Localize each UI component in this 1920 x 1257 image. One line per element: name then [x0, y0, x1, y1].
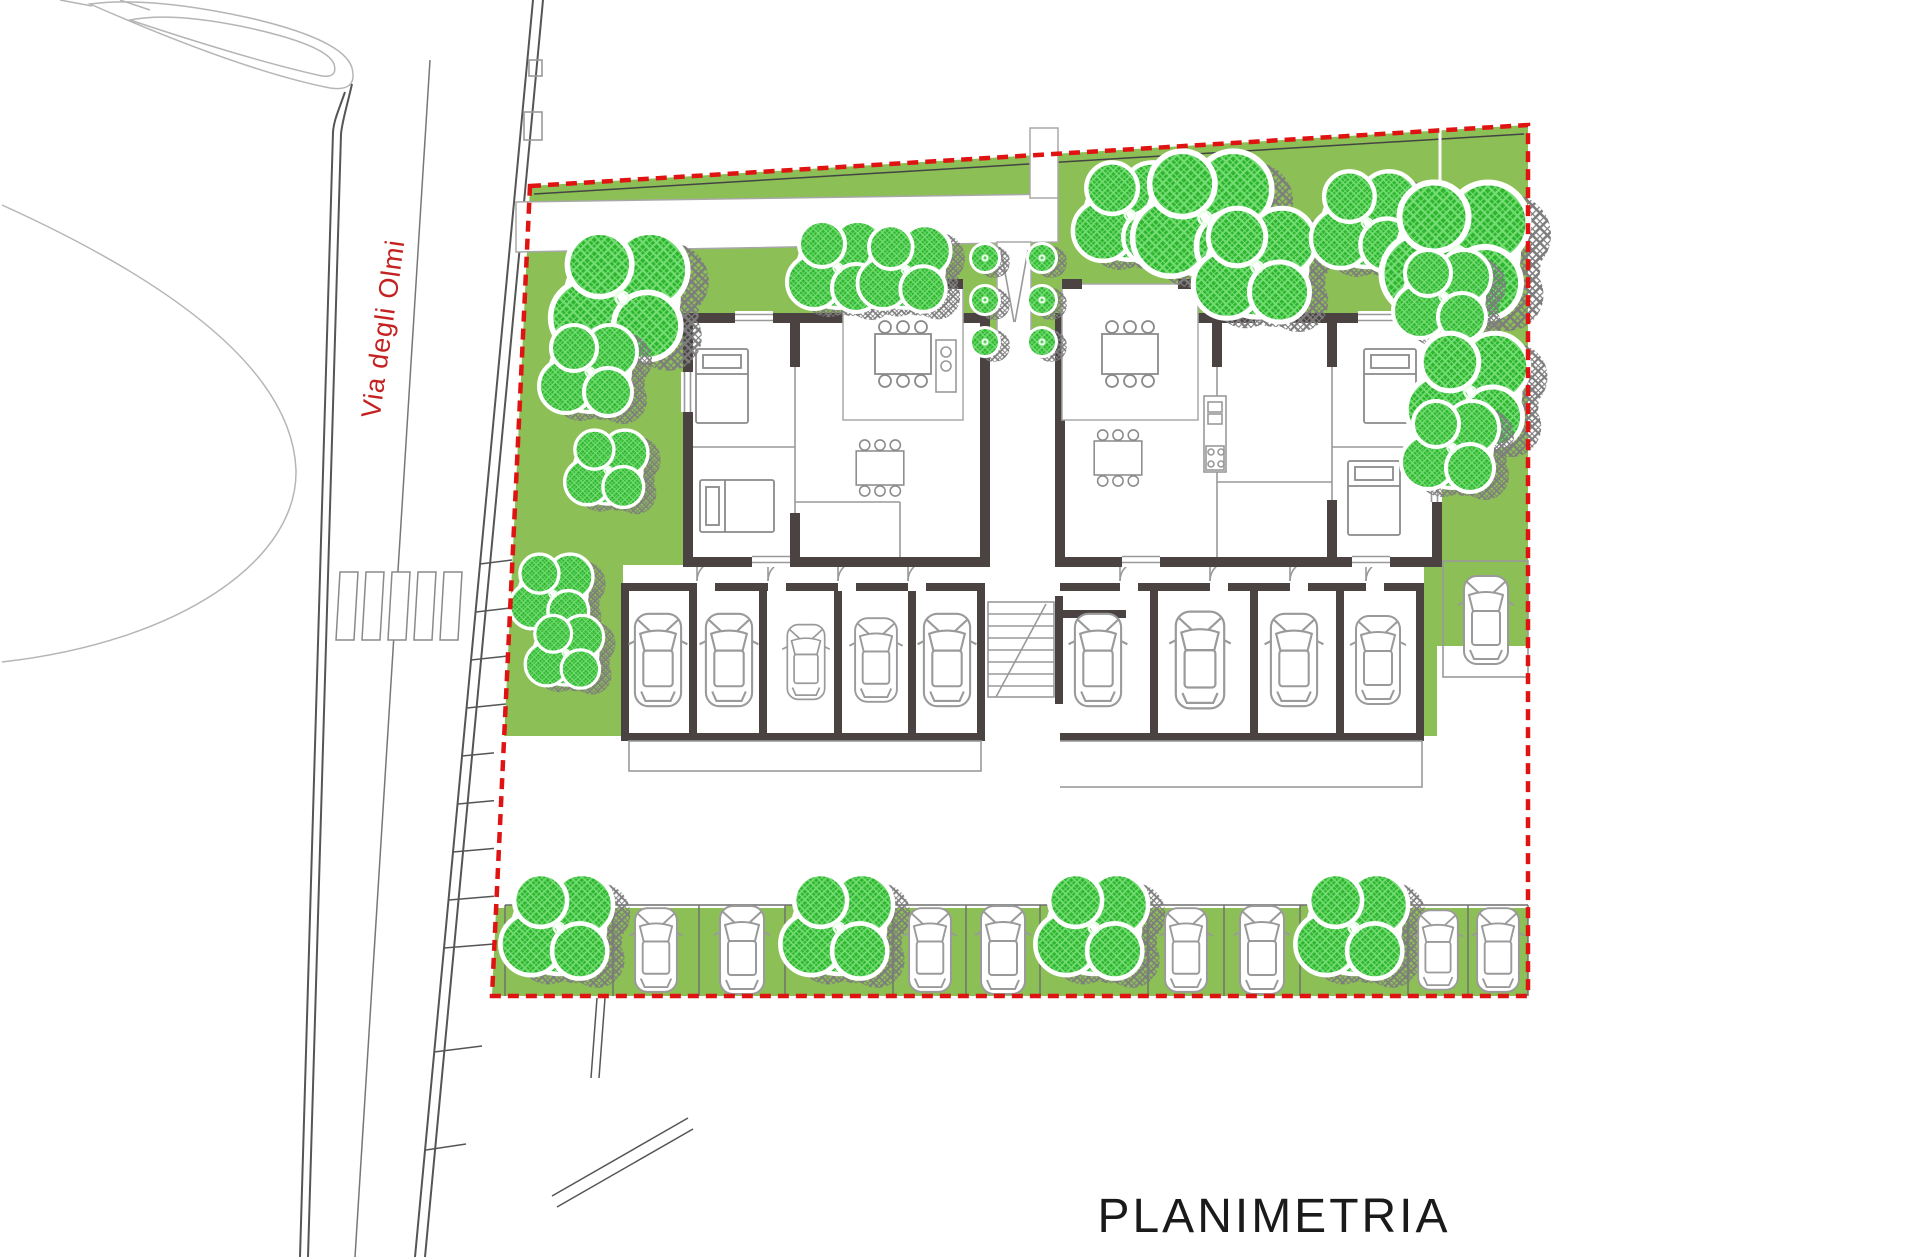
- tree-icon: [780, 874, 910, 988]
- tree-icon: [525, 615, 615, 694]
- car-icon: [629, 614, 688, 706]
- car-icon: [1169, 612, 1231, 709]
- car-icon: [700, 614, 759, 706]
- dining-table: [1102, 321, 1158, 387]
- tree-icon: [500, 874, 630, 988]
- car-icon: [714, 906, 770, 994]
- car-icon: [1413, 910, 1463, 989]
- tree-icon: [1401, 401, 1514, 500]
- car-icon: [1458, 576, 1514, 664]
- car-icon: [975, 906, 1031, 994]
- bed: [1348, 461, 1400, 535]
- bed: [696, 349, 748, 423]
- tree-icon: [565, 430, 661, 514]
- car-icon: [629, 908, 682, 992]
- site-plan-page: Via degli Olmi: [0, 0, 1920, 1257]
- kitchen-table: [856, 440, 904, 496]
- tree-icon: [1295, 874, 1425, 988]
- kitchen-table: [1094, 430, 1142, 486]
- car-icon: [782, 625, 830, 700]
- road-left-edge: [300, 92, 345, 1257]
- kitchen-left: [936, 340, 956, 392]
- car-icon: [1265, 614, 1324, 706]
- street-label: Via degli Olmi: [356, 237, 411, 420]
- dining-table: [875, 321, 931, 387]
- street-curve: [2, 205, 296, 662]
- bed: [700, 480, 774, 532]
- car-icon: [1159, 908, 1212, 992]
- car-icon: [849, 618, 902, 702]
- staircase: [988, 602, 1054, 697]
- tree-icon: [858, 225, 965, 319]
- kitchen-right: [1204, 396, 1226, 472]
- crosswalk: [336, 572, 462, 640]
- apartment-left-wing: [681, 279, 985, 567]
- car-icon: [1069, 614, 1128, 706]
- car-icon: [1350, 616, 1406, 704]
- car-icon: [903, 908, 956, 992]
- page-title: PLANIMETRIA: [1097, 1190, 1450, 1243]
- tree-icon: [1035, 874, 1165, 988]
- car-icon: [1471, 908, 1524, 992]
- traffic-island-inner: [130, 17, 335, 76]
- car-icon: [1234, 906, 1290, 994]
- top-path: [1030, 128, 1058, 198]
- building: [621, 279, 1442, 798]
- site-plan-canvas: Via degli Olmi: [0, 0, 1920, 1257]
- car-icon: [918, 614, 977, 706]
- tree-icon: [539, 325, 652, 424]
- traffic-island-outline: [90, 2, 353, 89]
